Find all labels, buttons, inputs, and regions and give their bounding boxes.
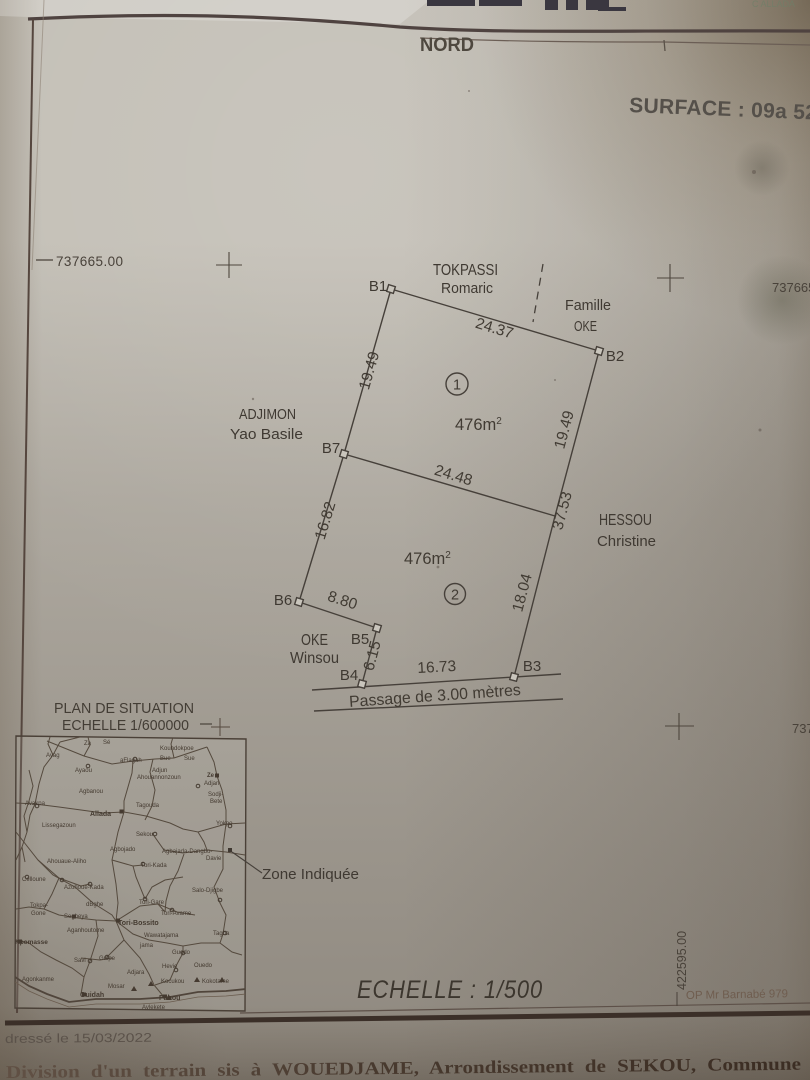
svg-text:Famille: Famille xyxy=(565,297,611,314)
svg-text:Sodji-: Sodji- xyxy=(208,792,223,798)
svg-text:Adjara: Adjara xyxy=(127,970,145,976)
svg-text:Kokotame: Kokotame xyxy=(202,979,230,985)
svg-text:HESSOU: HESSOU xyxy=(599,512,652,529)
svg-text:Tori-Avame: Tori-Avame xyxy=(161,911,192,917)
svg-text:Bue: Bue xyxy=(160,756,171,762)
svg-text:Sue: Sue xyxy=(184,756,195,762)
svg-text:Christine: Christine xyxy=(597,533,656,550)
svg-text:Agonkanme: Agonkanme xyxy=(22,977,55,983)
svg-text:Koundokpoe: Koundokpoe xyxy=(160,746,194,752)
svg-text:Zone Indiquée: Zone Indiquée xyxy=(262,866,359,883)
svg-text:Pahou: Pahou xyxy=(159,995,180,1002)
svg-text:476m2: 476m2 xyxy=(455,416,502,434)
svg-text:TOKPASSI: TOKPASSI xyxy=(433,262,498,279)
svg-text:Adjan: Adjan xyxy=(204,781,219,787)
svg-text:Kocukou: Kocukou xyxy=(161,979,184,985)
svg-text:Yokpo: Yokpo xyxy=(216,821,233,827)
svg-text:422595.00: 422595.00 xyxy=(675,931,689,990)
svg-text:Kpomasse: Kpomasse xyxy=(15,939,48,946)
svg-text:dressé le 15/03/2022: dressé le 15/03/2022 xyxy=(5,1031,152,1046)
svg-text:Tagouda: Tagouda xyxy=(136,803,160,809)
svg-text:Hevie: Hevie xyxy=(162,964,178,970)
svg-text:Ouidah: Ouidah xyxy=(80,992,104,999)
svg-text:Agbajada-Dangbo-: Agbajada-Dangbo- xyxy=(162,849,212,855)
svg-text:B4: B4 xyxy=(340,667,358,684)
svg-text:Segbeya: Segbeya xyxy=(64,914,88,920)
svg-text:Ze: Ze xyxy=(207,773,215,779)
svg-text:Romaric: Romaric xyxy=(441,280,493,297)
svg-text:Winsou: Winsou xyxy=(290,650,339,667)
svg-text:Tori-Bossito: Tori-Bossito xyxy=(118,920,159,927)
svg-text:Ahouannonzoun: Ahouannonzoun xyxy=(137,775,181,781)
svg-text:Agbojado: Agbojado xyxy=(110,847,136,853)
svg-text:Bete: Bete xyxy=(210,799,223,805)
svg-text:OKE: OKE xyxy=(574,318,597,335)
svg-text:PLAN DE SITUATION: PLAN DE SITUATION xyxy=(54,700,194,717)
svg-text:1: 1 xyxy=(453,378,461,394)
svg-text:Sekou: Sekou xyxy=(136,832,153,838)
svg-text:OP Mr Barnabé 979: OP Mr Barnabé 979 xyxy=(686,988,788,1002)
svg-text:Ayaou: Ayaou xyxy=(75,768,92,774)
svg-text:Aganhoutome: Aganhoutome xyxy=(67,928,105,934)
svg-text:Gone: Gone xyxy=(31,911,46,917)
svg-text:Davie: Davie xyxy=(206,856,222,862)
svg-text:737665.00: 737665.00 xyxy=(56,254,123,269)
svg-text:Savi: Savi xyxy=(74,958,86,964)
svg-text:Wawatajama: Wawatajama xyxy=(144,933,179,939)
svg-text:737665: 737665 xyxy=(772,280,810,295)
svg-text:Tagba: Tagba xyxy=(213,931,230,937)
svg-text:Za: Za xyxy=(84,741,92,747)
svg-text:Yao Basile: Yao Basile xyxy=(230,426,303,443)
svg-text:jama: jama xyxy=(139,943,154,949)
svg-text:C ALLADA: C ALLADA xyxy=(752,0,795,9)
svg-text:476m2: 476m2 xyxy=(404,550,451,568)
svg-text:2: 2 xyxy=(451,588,459,604)
svg-text:Ayag: Ayag xyxy=(46,753,60,759)
svg-text:aFlagah: aFlagah xyxy=(120,758,142,764)
svg-text:737: 737 xyxy=(792,721,810,736)
svg-text:Lissegazoun: Lissegazoun xyxy=(42,823,76,829)
svg-text:B6: B6 xyxy=(274,592,292,609)
svg-text:Tokpa-: Tokpa- xyxy=(30,903,48,909)
svg-text:Agbanou: Agbanou xyxy=(79,789,103,795)
svg-text:Azohoue-Kada: Azohoue-Kada xyxy=(64,885,104,891)
svg-text:Ahouaue-Aliho: Ahouaue-Aliho xyxy=(47,859,87,865)
svg-text:Allada: Allada xyxy=(90,811,111,818)
svg-text:Guipe: Guipe xyxy=(99,956,116,962)
svg-text:Tori-Kada: Tori-Kada xyxy=(141,863,167,869)
svg-text:Celloune: Celloune xyxy=(22,877,46,883)
svg-text:Avakpa: Avakpa xyxy=(25,801,46,807)
svg-text:Adjun: Adjun xyxy=(152,768,167,774)
svg-text:Tori-Gare: Tori-Gare xyxy=(139,900,165,906)
svg-text:ECHELLE : 1/500: ECHELLE : 1/500 xyxy=(357,976,543,1004)
svg-text:B3: B3 xyxy=(523,658,541,675)
svg-text:Ouedo: Ouedo xyxy=(194,963,213,969)
svg-text:Guedo: Guedo xyxy=(172,950,191,956)
svg-text:B1: B1 xyxy=(369,278,387,295)
svg-text:NORD: NORD xyxy=(420,35,474,56)
svg-text:16.73: 16.73 xyxy=(417,658,457,677)
svg-text:ADJIMON: ADJIMON xyxy=(239,406,296,423)
svg-text:B2: B2 xyxy=(606,348,624,365)
svg-text:Salo-Djigbe: Salo-Djigbe xyxy=(192,888,224,894)
svg-text:dBghe: dBghe xyxy=(86,902,104,908)
svg-text:OKE: OKE xyxy=(301,632,328,649)
svg-text:Mosar: Mosar xyxy=(108,984,125,990)
svg-text:ECHELLE 1/600000: ECHELLE 1/600000 xyxy=(62,717,189,734)
svg-text:B7: B7 xyxy=(322,440,340,457)
svg-text:Sé: Sé xyxy=(103,740,111,746)
